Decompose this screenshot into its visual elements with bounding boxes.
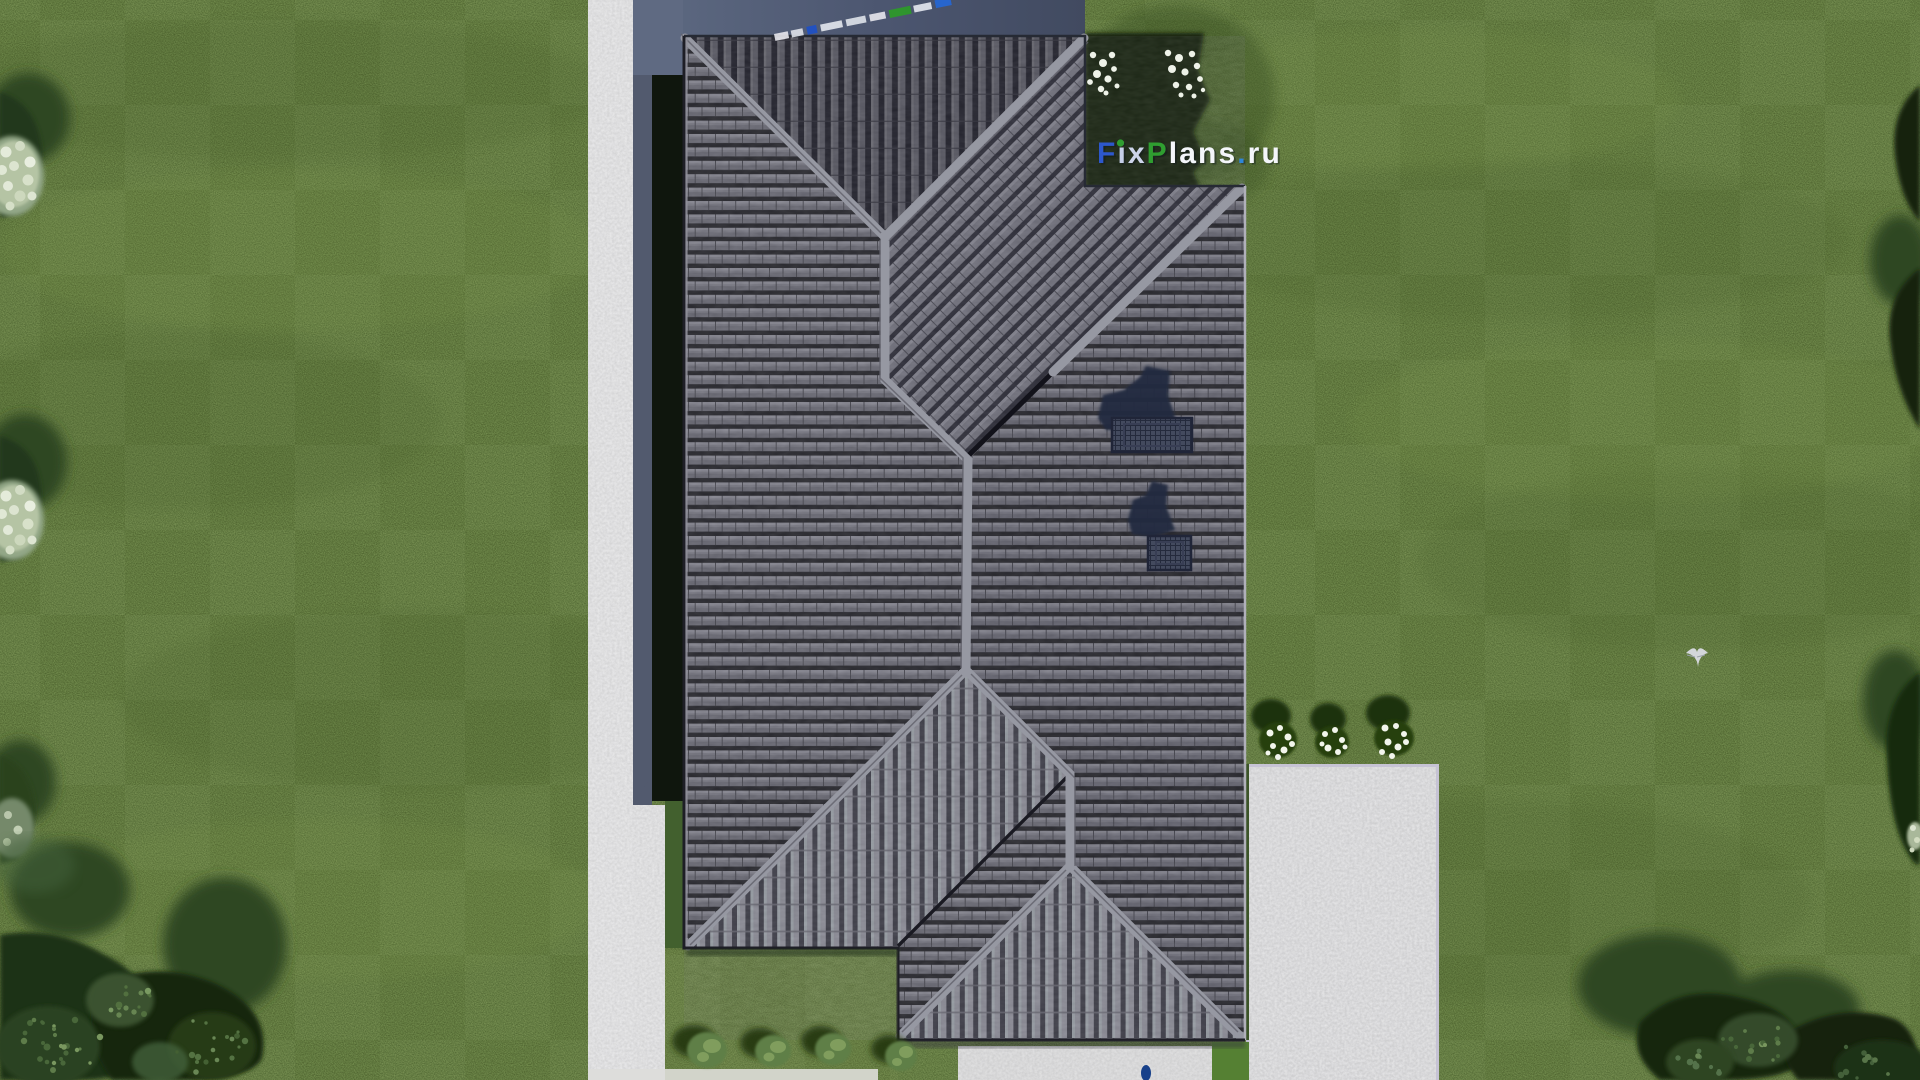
svg-text:FixPlans.ru: FixPlans.ru <box>1097 137 1282 170</box>
